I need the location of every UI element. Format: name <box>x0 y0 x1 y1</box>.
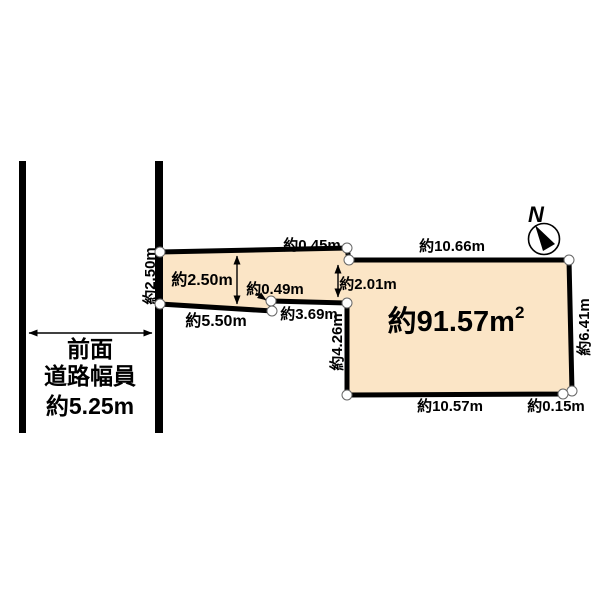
parcel-area-value: 約91.57m <box>388 304 515 338</box>
label-step-depth: 約2.01m <box>339 275 397 293</box>
corner-dot <box>155 299 165 309</box>
corner-dot <box>344 255 354 265</box>
land-plot-diagram: 約0.45m 約10.66m 約2.50m 約2.50m 約0.49m 約2.0… <box>0 0 600 600</box>
corner-dot <box>342 390 352 400</box>
parcel-area-label: 約91.57m2 <box>388 303 525 338</box>
label-right-edge: 約6.41m <box>575 298 593 356</box>
label-bottom-edge: 約10.57m <box>417 397 483 415</box>
label-top-step: 約0.45m <box>283 236 341 254</box>
corner-dot <box>564 255 574 265</box>
label-inner-left-edge: 約4.26m <box>328 313 346 371</box>
corner-dot <box>558 389 568 399</box>
label-bottom-step: 約0.49m <box>246 280 304 298</box>
road-label-line1: 前面 <box>67 336 113 362</box>
road-label-line3: 約5.25m <box>46 393 134 419</box>
corner-dot <box>567 386 577 396</box>
parcel-area-superscript: 2 <box>515 303 524 322</box>
corner-dot <box>342 298 352 308</box>
label-bottom-right-step: 約0.15m <box>527 397 585 415</box>
label-strip-depth-inner: 約2.50m <box>171 270 232 289</box>
label-top-edge: 約10.66m <box>419 237 485 255</box>
corner-dot <box>342 243 352 253</box>
road-edge-line-left <box>19 161 26 433</box>
corner-dot <box>155 247 165 257</box>
corner-dot <box>267 306 277 316</box>
label-strip-bottom-near: 約5.50m <box>185 311 246 330</box>
corner-dot <box>266 296 276 306</box>
road-label-line2: 道路幅員 <box>44 363 136 389</box>
